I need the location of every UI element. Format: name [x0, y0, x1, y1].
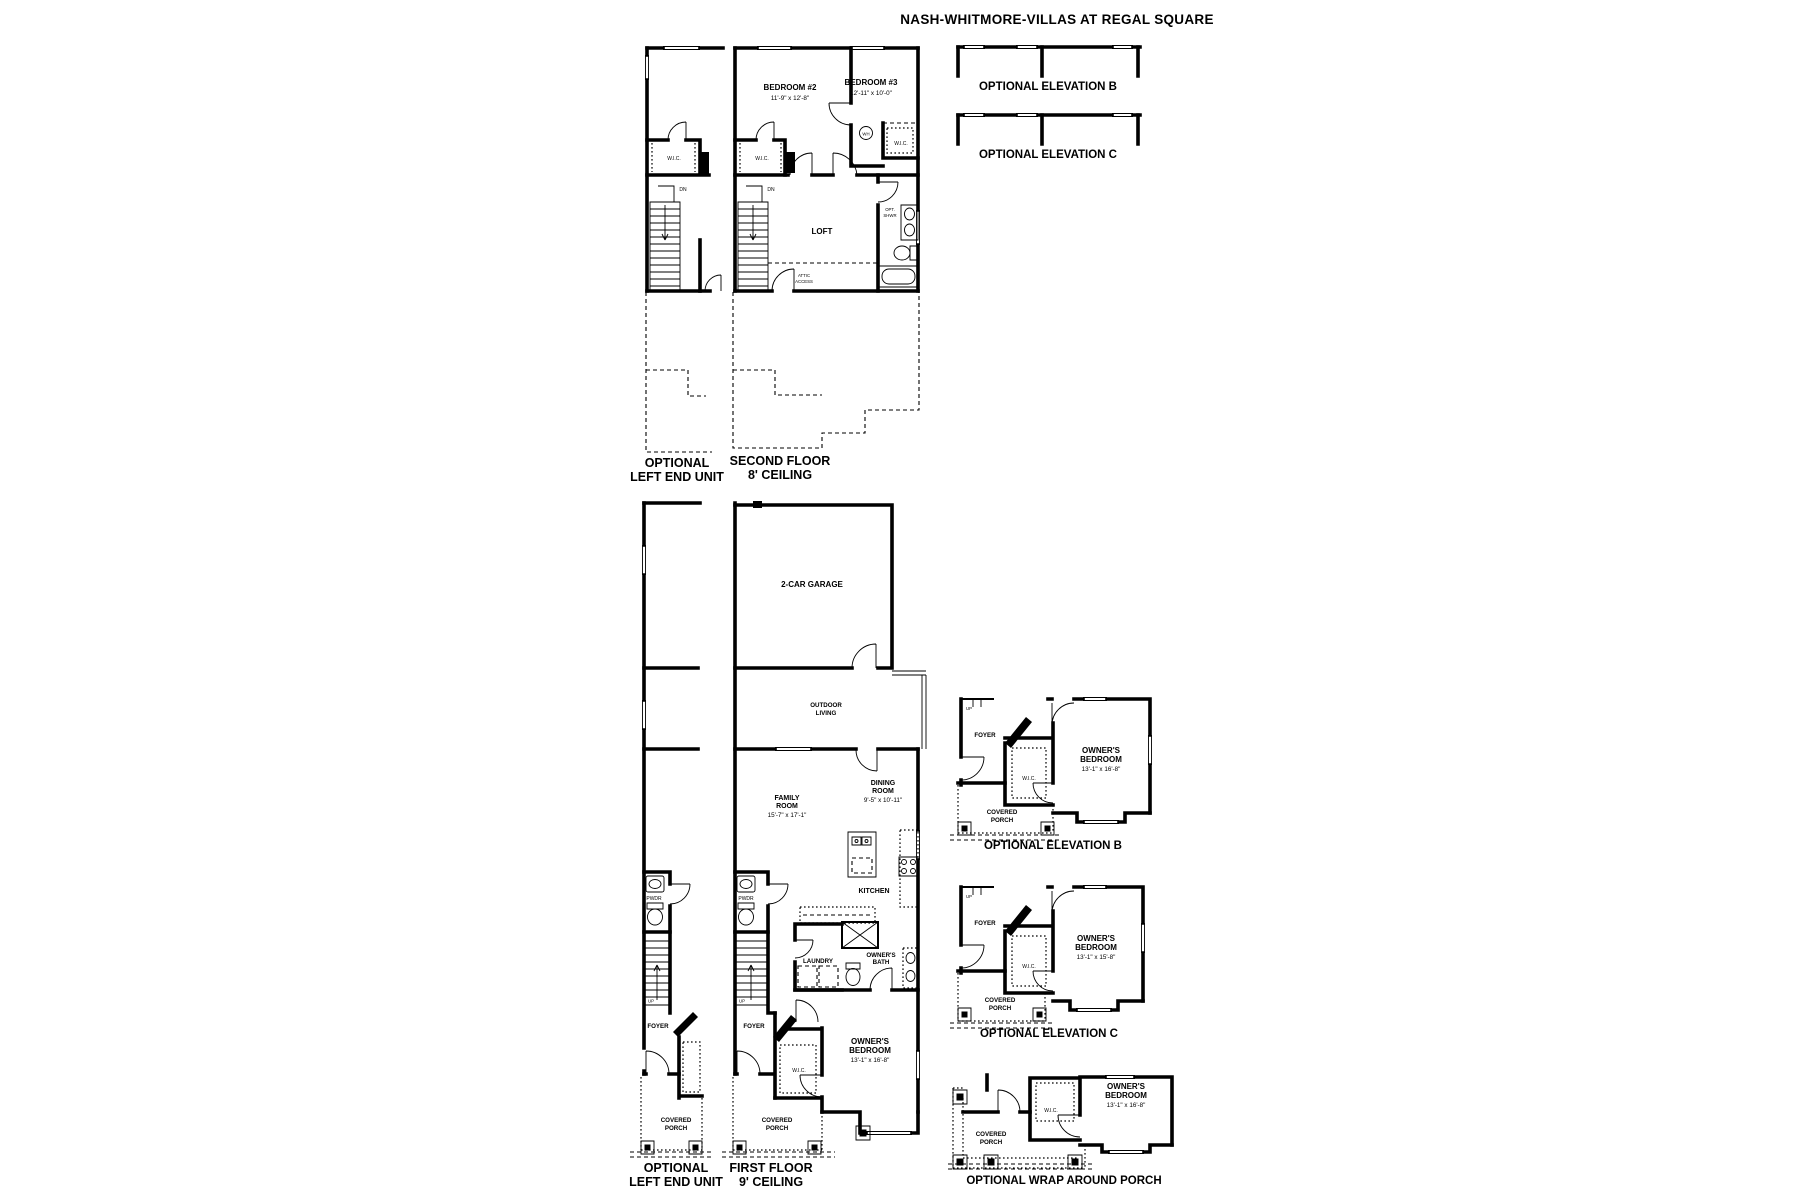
wh-label: WH	[862, 132, 869, 137]
bedroom2-name: BEDROOM #2	[764, 83, 817, 92]
up-label: UP	[966, 894, 972, 899]
caption-optional: OPTIONAL	[644, 1161, 709, 1175]
tub-basin-icon	[882, 269, 915, 284]
toilet-icon	[739, 909, 754, 925]
covered-porch-main: COVERED PORCH	[722, 1077, 835, 1157]
bedroom-label: BEDROOM	[849, 1046, 891, 1055]
bath-door	[870, 968, 892, 990]
bedroom-label: BEDROOM	[1105, 1091, 1147, 1100]
caption-optional-elevation-c: OPTIONAL ELEVATION C	[979, 149, 1117, 161]
owners-label: OWNER'S	[1077, 934, 1116, 943]
stairs-down: DN	[650, 186, 687, 290]
bedroom2-wic: W.I.C.	[735, 122, 795, 175]
foyer-label: FOYER	[974, 920, 996, 927]
covered-label: COVERED	[976, 1131, 1007, 1138]
laundry-label: LAUNDRY	[803, 958, 834, 965]
bedroom3-door	[829, 103, 851, 125]
owners-label: OWNER'S	[1107, 1082, 1146, 1091]
toilet-icon	[846, 969, 860, 986]
caption-optional-elevation-b: OPTIONAL ELEVATION B	[979, 81, 1117, 93]
wic-label: W.I.C.	[1022, 964, 1036, 970]
walls	[646, 47, 724, 292]
entry-door	[998, 1090, 1020, 1112]
family-room: FAMILY ROOM 15'-7" x 17'-1"	[768, 795, 807, 819]
kitchen: KITCHEN	[800, 830, 918, 923]
opt-label: OPT.	[885, 207, 895, 212]
stairs-up: UP	[645, 932, 670, 1013]
porch-label: PORCH	[980, 1139, 1003, 1146]
wic-label: W.I.C.	[1044, 1108, 1058, 1114]
wic: W.I.C.	[1005, 905, 1053, 993]
owners-bedroom: OWNER'S BEDROOM 13'-1" x 16'-8"	[1080, 1076, 1172, 1154]
room-label: ROOM	[776, 803, 798, 810]
caption-9-ceiling: 9' CEILING	[739, 1175, 803, 1189]
covered-label: COVERED	[987, 809, 1018, 816]
foyer-label: FOYER	[974, 732, 996, 739]
wic-label: W.I.C.	[755, 156, 769, 162]
sink-icon	[906, 953, 915, 964]
optional-elevation-c-plan: UP FOYER W.I.C. OWNER'S BEDROOM 13'-1" x…	[950, 886, 1145, 1041]
vanity	[901, 205, 918, 240]
wic-door	[1033, 971, 1053, 991]
water-heater: WH	[860, 127, 873, 140]
caption-first-floor: FIRST FLOOR	[729, 1161, 812, 1175]
vanity	[903, 948, 918, 988]
up-label: UP	[739, 999, 745, 1004]
porch-label: PORCH	[665, 1125, 688, 1132]
wic-door	[800, 1075, 822, 1097]
wic-closet: W.I.C.	[652, 122, 695, 172]
dining-door	[856, 749, 877, 771]
porch-label: PORCH	[991, 817, 1014, 824]
laundry: LAUNDRY	[795, 924, 842, 990]
owners-label: OWNER'S	[851, 1037, 890, 1046]
dryer-icon	[819, 966, 838, 987]
stairs-down-main: DN	[738, 186, 775, 290]
owners-wic: W.I.C.	[773, 1015, 822, 1112]
bath-label: BATH	[873, 959, 890, 966]
toilet-tank-icon	[647, 903, 663, 909]
sink-icon	[649, 880, 661, 889]
sink-icon	[905, 224, 915, 236]
foyer-label: FOYER	[743, 1023, 765, 1030]
owners-label: OWNER'S	[866, 952, 895, 959]
powder-room: PWDR	[644, 872, 690, 932]
dining-dims: 9'-5" x 10'-11"	[864, 797, 902, 804]
floorplan-drawing: NASH-WHITMORE-VILLAS AT REGAL SQUARE W.I…	[0, 0, 1800, 1200]
first-floor-left-end-unit-plan: PWDR UP FOYER COVERED PORCH	[630, 503, 712, 1157]
bedroom-hall-door	[796, 1000, 818, 1022]
pwdr-label: PWDR	[646, 896, 662, 902]
dn-label: DN	[679, 187, 687, 193]
caption-left-end-unit: LEFT END UNIT	[629, 1175, 723, 1189]
porch-side-wall	[673, 1012, 702, 1098]
dining-room: DINING ROOM 9'-5" x 10'-11"	[864, 780, 902, 804]
caption-left-end-unit: LEFT END UNIT	[630, 470, 724, 484]
floorplan-sheet: NASH-WHITMORE-VILLAS AT REGAL SQUARE W.I…	[0, 0, 1800, 1200]
bedroom-label: BEDROOM	[1075, 943, 1117, 952]
wic: W.I.C.	[1030, 1078, 1080, 1140]
up-label: UP	[966, 706, 972, 711]
sink-icon	[740, 880, 752, 889]
caption-optional-elevation-b-plan: OPTIONAL ELEVATION B	[984, 840, 1122, 852]
owners-bedroom-dims: 13'-1" x 16'-8"	[851, 1057, 890, 1064]
caption-8-ceiling: 8' CEILING	[748, 468, 812, 482]
garage: 2-CAR GARAGE	[735, 501, 892, 668]
owners-bedroom: OWNER'S BEDROOM 13'-1" x 15'-8"	[1048, 886, 1145, 1012]
caption-optional-elevation-c-plan: OPTIONAL ELEVATION C	[980, 1028, 1118, 1040]
bedroom-dims: 13'-1" x 16'-8"	[1082, 766, 1121, 773]
owners-bath: OWNER'S BATH	[795, 922, 918, 990]
bedroom3-wic: W.I.C.	[883, 123, 918, 158]
kitchen-label: KITCHEN	[858, 888, 889, 895]
covered-porch: COVERED PORCH	[950, 973, 1055, 1028]
bedroom2-dims: 11'-9" x 12'-8"	[771, 95, 809, 102]
toilet-tank-icon	[738, 903, 754, 909]
outdoor-label: OUTDOOR	[810, 702, 842, 709]
sink-icon	[906, 971, 915, 982]
dishwasher-icon	[852, 858, 872, 873]
sink-basin-icon	[852, 837, 861, 845]
up-label: UP	[648, 999, 654, 1004]
garage-label: 2-CAR GARAGE	[781, 580, 843, 589]
hall-bath: OPT. SHWR	[878, 175, 918, 291]
wic: W.I.C.	[1005, 717, 1053, 805]
bedroom-dims: 13'-1" x 16'-8"	[1107, 1102, 1146, 1109]
wic-label: W.I.C.	[792, 1068, 806, 1074]
entry-door	[961, 757, 984, 780]
caption-optional: OPTIONAL	[645, 456, 710, 470]
porch-label: PORCH	[989, 1005, 1012, 1012]
first-floor-plan: 2-CAR GARAGE OUTDOOR LIVING FAMILY ROOM …	[722, 501, 926, 1157]
powder-room-main: PWDR	[735, 872, 788, 932]
pwdr-label: PWDR	[738, 896, 754, 902]
toilet-icon	[894, 246, 910, 260]
second-floor-footprint-dashed	[646, 292, 919, 452]
bedroom3-dims: 12'-11" x 10'-0"	[850, 90, 892, 97]
wic-label: W.I.C.	[894, 141, 908, 147]
optional-elevation-b-plan: UP FOYER W.I.C. OWNER'S BEDROOM 13'-1" x…	[950, 698, 1152, 853]
covered-label: COVERED	[661, 1117, 692, 1124]
attic-label: ATTIC	[798, 273, 810, 278]
toilet-icon	[648, 909, 663, 925]
bedroom-dims: 13'-1" x 15'-8"	[1077, 954, 1116, 961]
garage-entry-door	[852, 644, 876, 668]
family-dims: 15'-7" x 17'-1"	[768, 812, 807, 819]
wic-door	[1033, 783, 1053, 803]
second-floor-left-end-unit-plan: W.I.C. DN	[646, 47, 724, 292]
foyer-walls	[963, 1075, 1030, 1112]
washer-icon	[798, 966, 817, 987]
loft-label: LOFT	[812, 227, 833, 236]
optional-wrap-around-porch-plan: W.I.C. OWNER'S BEDROOM 13'-1" x 16'-8" C…	[948, 1075, 1172, 1187]
foyer-walls	[958, 699, 1005, 785]
bedroom-label: BEDROOM	[1080, 755, 1122, 764]
shwr-label: SHWR	[883, 213, 896, 218]
outdoor-living: OUTDOOR LIVING	[735, 671, 926, 771]
exterior-right-wall	[917, 749, 920, 1112]
dining-label: DINING	[871, 780, 896, 787]
covered-label: COVERED	[985, 997, 1016, 1004]
covered-label: COVERED	[762, 1117, 793, 1124]
foyer-label: FOYER	[647, 1023, 669, 1030]
caption-second-floor: SECOND FLOOR	[730, 454, 831, 468]
entry-door	[737, 1051, 760, 1074]
caption-optional-wrap-around-porch: OPTIONAL WRAP AROUND PORCH	[966, 1175, 1161, 1187]
optional-elevation-c-top: OPTIONAL ELEVATION C	[958, 114, 1140, 162]
family-label: FAMILY	[774, 795, 799, 802]
wrap-porch: COVERED PORCH	[948, 1088, 1092, 1169]
door-arc	[705, 275, 721, 291]
second-floor-plan: BEDROOM #2 11'-9" x 12'-8" BEDROOM #3 12…	[735, 47, 920, 292]
entry-door	[961, 945, 984, 968]
dn-label: DN	[767, 187, 775, 193]
bedroom-door	[1052, 703, 1074, 725]
sheet-title: NASH-WHITMORE-VILLAS AT REGAL SQUARE	[900, 12, 1214, 27]
room-label: ROOM	[872, 788, 894, 795]
owners-bedroom: OWNER'S BEDROOM 13'-1" x 16'-8"	[1048, 698, 1152, 824]
stairs-up-main: UP	[735, 932, 775, 1013]
sink-basin-icon	[862, 837, 871, 845]
owners-bedroom: OWNER'S BEDROOM 13'-1" x 16'-8"	[822, 1037, 918, 1140]
foyer-walls	[958, 887, 1005, 973]
porch-label: PORCH	[766, 1125, 789, 1132]
owners-label: OWNER'S	[1082, 746, 1121, 755]
optional-elevation-b-top: OPTIONAL ELEVATION B	[958, 46, 1140, 94]
bedroom3: BEDROOM #3 12'-11" x 10'-0"	[829, 48, 898, 166]
stair-stub: UP	[961, 887, 993, 899]
bedroom-door	[1052, 891, 1074, 913]
attic-access: ATTIC ACCESS	[772, 269, 813, 291]
wic-label: W.I.C.	[667, 156, 681, 162]
bedroom-divider-wall	[851, 48, 883, 166]
stair-stub: UP	[961, 699, 993, 711]
bedroom2: BEDROOM #2 11'-9" x 12'-8"	[764, 83, 817, 102]
entry-door	[646, 1051, 669, 1074]
wic-door	[1058, 1115, 1080, 1137]
wic-label: W.I.C.	[1022, 776, 1036, 782]
living-label: LIVING	[816, 710, 837, 717]
access-label: ACCESS	[795, 279, 813, 284]
sink-icon	[905, 208, 915, 220]
